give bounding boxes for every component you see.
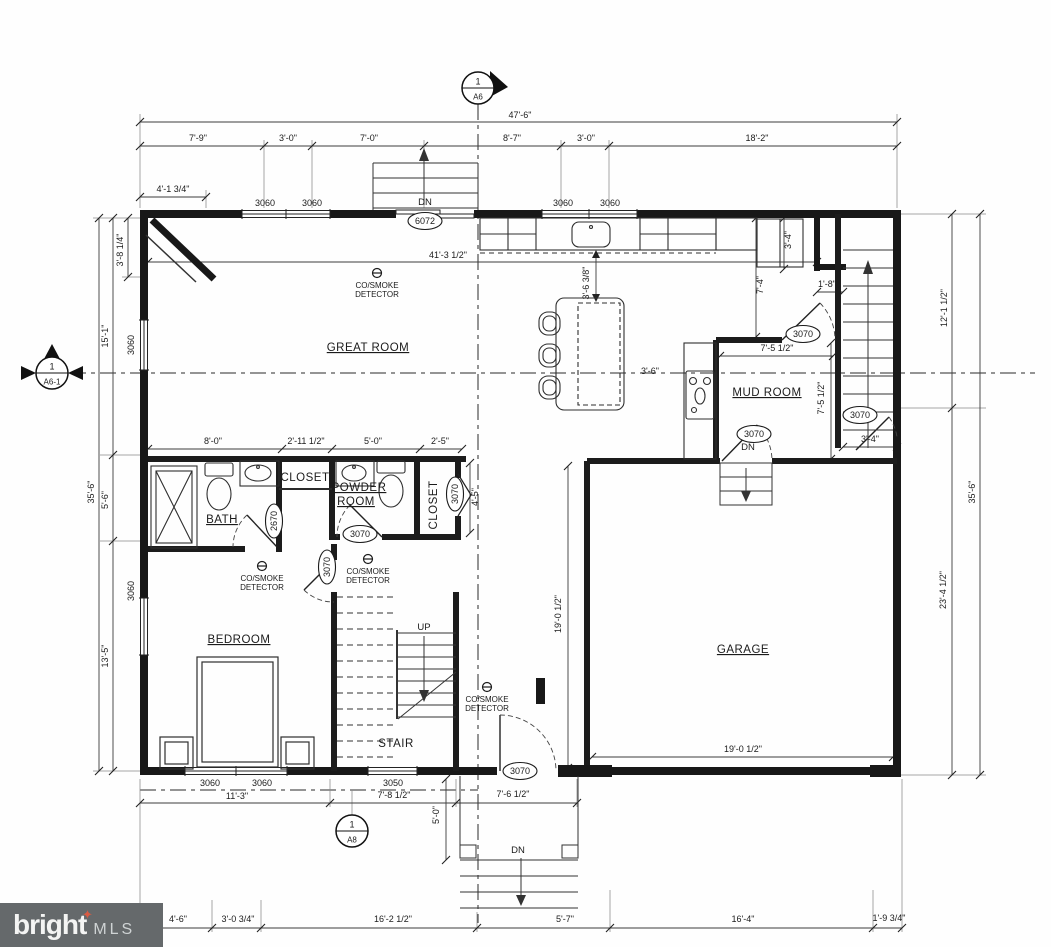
window-size-label: 3060	[126, 581, 136, 601]
exterior-walls	[140, 210, 901, 775]
window-size-label: 3060	[302, 198, 322, 208]
brightmls-brand-text: bright	[13, 903, 86, 947]
section-marker-flag	[21, 366, 36, 380]
room-label: CLOSET	[280, 472, 329, 484]
room-label: GARAGE	[717, 644, 769, 656]
tag-text: 3070	[450, 484, 460, 504]
stair-break-line	[398, 672, 456, 719]
dim-label: 7'-9"	[189, 133, 207, 143]
detector-label: CO/SMOKE	[465, 695, 508, 704]
dim-label: 4'-1 3/4"	[157, 184, 190, 194]
dim-label: 35'-6"	[967, 481, 977, 504]
detector-label: CO/SMOKE	[355, 281, 398, 290]
floor-plan-page: { "watermark": { "brand": "bright", "suf…	[0, 0, 1051, 947]
door-window-tag: 6072	[408, 213, 442, 230]
floor-plan-drawing: 47'-6"7'-9"3'-0"7'-0"8'-7"3'-0"18'-2"4'-…	[0, 0, 1051, 947]
window-size-label: 3060	[252, 778, 272, 788]
door-window-tag: 3070	[447, 477, 464, 511]
bed	[197, 657, 278, 767]
room-label: BATH	[206, 514, 238, 526]
interior-walls	[148, 214, 897, 771]
dim-label: 3'-0"	[577, 133, 595, 143]
window-size-label: 3060	[600, 198, 620, 208]
dim-label: 47'-6"	[509, 110, 532, 120]
dim-label: 35'-6"	[86, 481, 96, 504]
stair-direction-label: DN	[741, 442, 755, 453]
dim-label: 3'-4"	[861, 434, 879, 444]
detector-label: DETECTOR	[355, 290, 399, 299]
dim-label: 5'-7"	[556, 914, 574, 924]
dim-label: 3'-4"	[783, 231, 793, 249]
brightmls-suffix-text: MLS	[93, 921, 135, 939]
stair-direction-label: DN	[511, 845, 525, 856]
section-marker-number: 1	[349, 820, 354, 830]
dim-label: 16'-4"	[732, 914, 755, 924]
door-window-tag: 3070	[843, 407, 877, 424]
tag-text: 3070	[793, 329, 813, 339]
dim-label: 11'-3"	[226, 791, 248, 801]
island	[556, 298, 624, 410]
dim-label: 7'-5 1/2"	[816, 382, 826, 415]
dim-label: 7'-8 1/2"	[378, 790, 411, 800]
detector-label: CO/SMOKE	[346, 567, 389, 576]
room-label: POWDER	[332, 482, 387, 494]
stair-direction-label: UP	[417, 622, 430, 633]
detector-label: DETECTOR	[465, 704, 509, 713]
dim-label: 2'-11 1/2"	[287, 436, 324, 446]
window-3060-pair-top-left	[242, 209, 330, 219]
door-window-tag: 2670	[266, 504, 283, 538]
dim-label: 41'-3 1/2"	[429, 250, 467, 260]
dim-label: 3'-6 3/8"	[581, 267, 591, 300]
dim-label: 7'-0"	[360, 133, 378, 143]
toilet-powder-tank	[377, 461, 405, 473]
dim-label: 8'-0"	[204, 436, 222, 446]
door-window-tag: 3070	[786, 326, 820, 343]
section-marker-number: 1	[475, 77, 480, 87]
dim-label: 13'-5"	[100, 645, 110, 668]
tag-text: 3070	[850, 410, 870, 420]
bar-stools	[539, 312, 560, 399]
dim-label: 3'-0 3/4"	[222, 914, 255, 924]
dim-label: 15'-1"	[100, 325, 110, 348]
sink-faucet	[590, 226, 593, 229]
main-stair-dashed-treads	[337, 597, 397, 757]
dim-label: 8'-7"	[503, 133, 521, 143]
tag-text: 3070	[510, 766, 530, 776]
section-marker-sheet: A8	[347, 836, 357, 845]
tag-text: 3070	[322, 557, 332, 577]
dim-label: 23'-4 1/2"	[938, 571, 948, 609]
tag-text: 3070	[350, 529, 370, 539]
island-overhang	[578, 303, 620, 405]
door-window-tag: 3070	[503, 763, 537, 780]
tag-text: 6072	[415, 216, 435, 226]
window-3050-stair	[368, 766, 417, 776]
window-3060-left-upper	[139, 320, 149, 370]
entry-post	[536, 678, 545, 704]
room-label: GREAT ROOM	[327, 342, 410, 354]
window-size-label: 3050	[383, 778, 403, 788]
dim-label: 4'-6"	[169, 914, 187, 924]
counter-right-strip	[716, 218, 757, 250]
mudroom-north-door-swing	[820, 303, 835, 340]
dim-label: 7'-5 1/2"	[761, 343, 794, 353]
window-3060-left-lower	[139, 598, 149, 655]
room-label: MUD ROOM	[732, 387, 801, 399]
section-marker-number: 1	[49, 362, 54, 372]
dim-label: 7'-6 1/2"	[497, 789, 530, 799]
bedroom-door-swing	[304, 590, 334, 602]
front-door-swing	[500, 715, 556, 771]
brightmls-star-icon: ✦	[82, 907, 93, 923]
pantry-jog-wall	[817, 210, 846, 271]
room-label: ROOM	[337, 496, 375, 508]
dim-label: 3'-8 1/4"	[115, 234, 125, 267]
wall-pads	[536, 678, 901, 777]
detector-label: CO/SMOKE	[240, 574, 283, 583]
dim-label: 1'-9 3/4"	[873, 913, 906, 923]
bedroom-furniture	[160, 657, 314, 769]
section-marker-flag	[68, 366, 83, 380]
door-window-tag: 3070	[319, 550, 336, 584]
dim-label: 7'-4"	[755, 276, 765, 294]
dim-label: 2'-5"	[431, 436, 449, 446]
section-marker-sheet: A6-1	[44, 378, 61, 387]
room-label: CLOSET	[428, 480, 440, 529]
labels: 47'-6"7'-9"3'-0"7'-0"8'-7"3'-0"18'-2"4'-…	[21, 71, 977, 924]
main-stair-treads	[397, 633, 456, 717]
tag-text: 2670	[269, 511, 279, 531]
dim-label: 5'-6"	[100, 491, 110, 509]
toilet-bath-bowl	[207, 478, 231, 510]
window-size-label: 3060	[553, 198, 573, 208]
counter-dividers	[480, 218, 716, 250]
window-size-label: 3060	[200, 778, 220, 788]
dim-label: 3'-0"	[279, 133, 297, 143]
door-window-tag: 3070	[343, 526, 377, 543]
room-label: BEDROOM	[208, 634, 271, 646]
door-window-tag: 3070	[737, 426, 771, 443]
dim-label: 5'-0"	[364, 436, 382, 446]
dim-label: 16'-2 1/2"	[374, 914, 412, 924]
range-counter	[684, 343, 716, 459]
stair-direction-label: DN	[418, 197, 432, 208]
dim-label: 12'-1 1/2"	[939, 289, 949, 327]
section-marker-sheet: A6	[473, 93, 483, 102]
dim-label: 19'-0 1/2"	[724, 744, 762, 754]
room-label: STAIR	[378, 738, 414, 750]
dim-label: 1'-8"	[818, 279, 836, 289]
dim-label: 4'-5"	[470, 488, 480, 506]
dim-label: 18'-2"	[746, 133, 769, 143]
toilet-bath-tank	[205, 463, 233, 476]
window-size-label: 3060	[255, 198, 275, 208]
detector-label: DETECTOR	[346, 576, 390, 585]
dim-label: 3'-6"	[641, 366, 659, 376]
window-size-label: 3060	[126, 335, 136, 355]
brightmls-logo: bright ✦ MLS	[0, 903, 163, 947]
dim-label: 5'-0"	[431, 806, 441, 824]
tag-text: 3070	[744, 429, 764, 439]
dim-label: 19'-0 1/2"	[553, 595, 563, 633]
detector-label: DETECTOR	[240, 583, 284, 592]
